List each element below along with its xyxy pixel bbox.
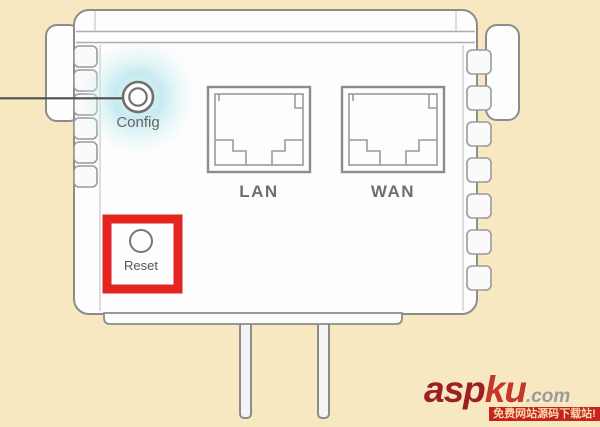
watermark-brand-ku: ku xyxy=(485,369,526,410)
plug-prong-left xyxy=(240,316,251,418)
wan-port-icon xyxy=(342,87,444,172)
reset-label: Reset xyxy=(124,258,158,273)
reset-button xyxy=(130,230,152,252)
extender-diagram: Config LAN WAN Reset xyxy=(0,0,600,427)
right-ridges xyxy=(467,50,491,290)
config-button-inner xyxy=(129,88,146,105)
lan-label: LAN xyxy=(239,182,278,201)
plug-prong-right xyxy=(318,316,329,418)
watermark-banner: 免费网站源码下载站! xyxy=(489,407,600,421)
lan-port-icon xyxy=(208,87,310,172)
diagram-canvas: Config LAN WAN Reset aspku.com 免费网站源码 xyxy=(0,0,600,427)
watermark-brand-asp: asp xyxy=(424,369,485,410)
watermark-brand-com: .com xyxy=(526,386,570,407)
wan-label: WAN xyxy=(371,182,415,201)
bottom-lip xyxy=(104,313,402,324)
config-label: Config xyxy=(116,114,159,131)
